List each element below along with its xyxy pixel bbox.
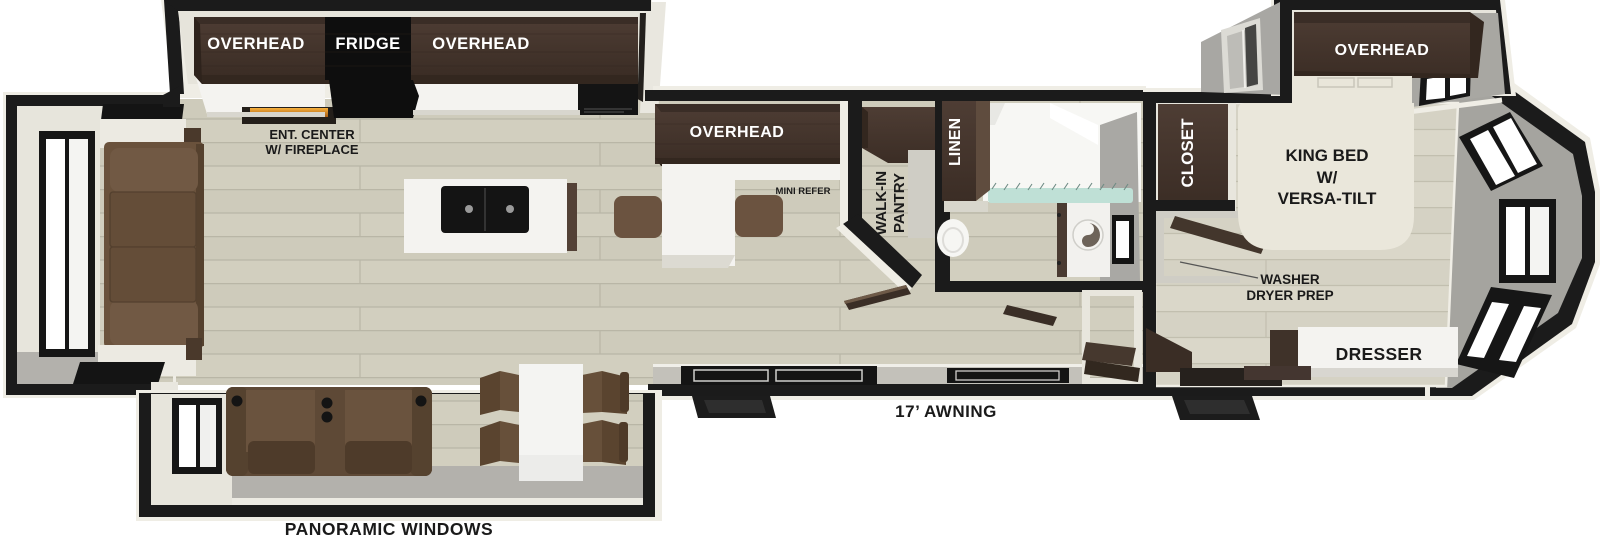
svg-text:DRESSER: DRESSER xyxy=(1336,344,1423,364)
svg-text:FRIDGE: FRIDGE xyxy=(335,35,400,53)
svg-text:DRYER PREP: DRYER PREP xyxy=(1246,288,1333,303)
svg-text:ENT. CENTER: ENT. CENTER xyxy=(269,127,355,142)
svg-text:OVERHEAD: OVERHEAD xyxy=(432,35,530,53)
svg-text:PANTRY: PANTRY xyxy=(891,173,908,233)
svg-text:MINI REFER: MINI REFER xyxy=(776,186,831,197)
svg-text:OVERHEAD: OVERHEAD xyxy=(207,35,305,53)
svg-text:OVERHEAD: OVERHEAD xyxy=(690,124,785,141)
svg-text:KING BED: KING BED xyxy=(1285,146,1368,165)
svg-text:LINEN: LINEN xyxy=(947,118,964,166)
svg-text:PANORAMIC WINDOWS: PANORAMIC WINDOWS xyxy=(285,519,493,538)
svg-text:17’ AWNING: 17’ AWNING xyxy=(895,402,997,421)
svg-text:OVERHEAD: OVERHEAD xyxy=(1335,42,1430,59)
svg-text:VERSA-TILT: VERSA-TILT xyxy=(1278,189,1377,208)
svg-text:WASHER: WASHER xyxy=(1260,272,1320,287)
svg-text:W/: W/ xyxy=(1317,168,1338,187)
svg-text:W/ FIREPLACE: W/ FIREPLACE xyxy=(265,142,358,157)
svg-text:WALK-IN: WALK-IN xyxy=(873,171,890,235)
svg-text:CLOSET: CLOSET xyxy=(1178,118,1197,188)
